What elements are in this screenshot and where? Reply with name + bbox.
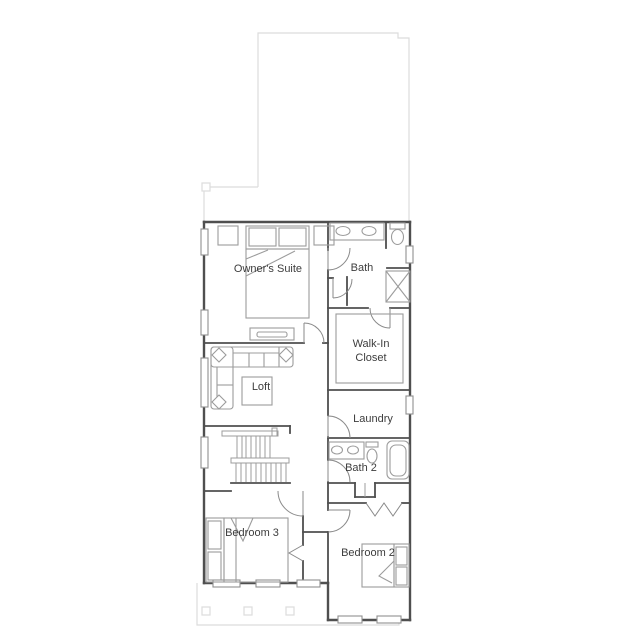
bedroom2-closet-doors [366,503,402,516]
window [201,310,208,335]
window [406,396,413,414]
stair-landing-rail [231,458,289,463]
bathtub [387,441,409,479]
floor-plan-drawing: Owner's Suite Bath Walk-In Closet Loft L… [0,0,639,639]
room-label-closet: Closet [355,352,386,364]
nightstand-left [218,226,238,245]
porch-outline [197,583,399,625]
room-label-bedroom-2: Bedroom 2 [341,547,395,559]
stair-rail [222,431,278,436]
pillow [396,547,407,565]
window [201,437,208,468]
porch-post [286,607,294,615]
window [256,580,280,587]
throw-pillow [212,348,226,362]
nightstand-right [314,226,334,245]
throw-pillow [279,348,293,362]
window [377,616,401,623]
bath2-toilet [366,442,378,463]
window [406,246,413,263]
shower [386,271,410,302]
room-label-owners-suite: Owner's Suite [234,263,302,275]
room-labels: Owner's Suite Bath Walk-In Closet Loft L… [225,262,395,559]
room-label-bedroom-3: Bedroom 3 [225,527,279,539]
bath-vanity [330,223,384,240]
bath2-vanity [329,442,364,459]
porch-post [202,607,210,615]
room-label-bath: Bath [351,262,374,274]
pillow [249,228,276,246]
pillow [208,552,221,580]
pillow [208,521,221,549]
stair-treads-lower [236,463,286,482]
window [338,616,362,623]
room-label-loft: Loft [252,381,270,393]
bedroom3-closet-door [289,545,303,561]
bath-toilet [390,223,405,245]
sink [332,446,343,454]
tv-console [250,328,294,340]
sectional-sofa [211,347,293,409]
porch-post [244,607,252,615]
sink [348,446,359,454]
window [297,580,320,587]
pillow [279,228,306,246]
throw-pillow [212,395,226,409]
sink [362,227,376,236]
window [201,358,208,407]
staircase [222,428,289,482]
floor-plan-canvas: Owner's Suite Bath Walk-In Closet Loft L… [0,0,639,639]
room-label-bath-2: Bath 2 [345,462,377,474]
pillow [396,567,407,585]
room-label-laundry: Laundry [353,413,393,425]
stair-treads-upper [237,436,270,458]
window [201,229,208,255]
newel-post [272,428,277,436]
linen-closet [355,483,375,497]
room-label-walk-in: Walk-In [353,338,390,350]
sink [336,227,350,236]
roof-outline [202,33,409,222]
